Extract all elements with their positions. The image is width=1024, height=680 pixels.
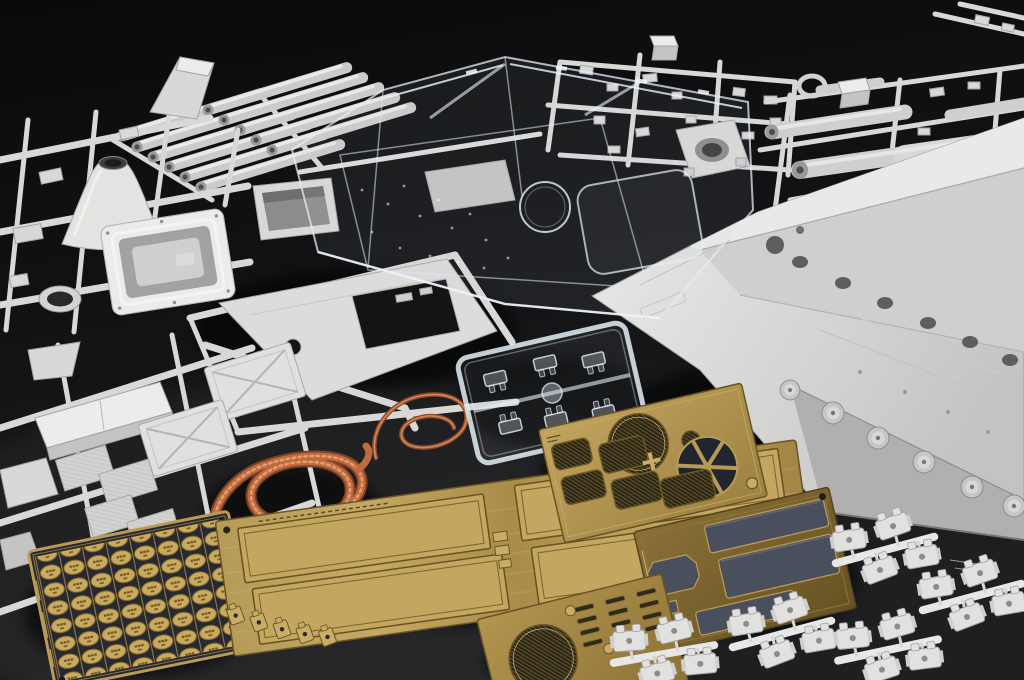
tray-dish-part xyxy=(100,208,237,316)
kit-contents-photo xyxy=(0,0,1024,680)
ring-part xyxy=(39,286,81,312)
kit-photo-svg xyxy=(0,0,1024,680)
box-part xyxy=(838,78,870,108)
window-opening xyxy=(575,168,705,277)
box-part xyxy=(650,36,678,60)
